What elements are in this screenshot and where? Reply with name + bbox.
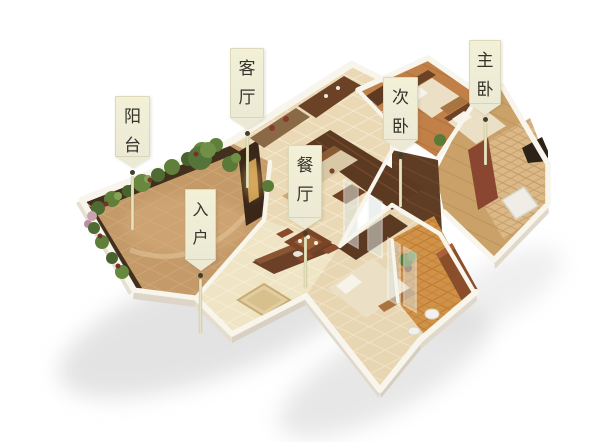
room-label-living-room: 客厅 [230, 48, 264, 129]
room-label-entrance: 入户 [185, 189, 216, 271]
room-label-point [186, 260, 216, 271]
room-label-body: 餐厅 [288, 145, 322, 218]
room-label-text: 客厅 [237, 48, 257, 113]
room-label-point [230, 118, 264, 129]
room-label-balcony: 阳台 [115, 96, 150, 168]
room-label-body: 客厅 [230, 48, 264, 118]
pin-dot [398, 153, 403, 158]
room-label-point [384, 140, 418, 151]
pin-stem [246, 137, 249, 188]
room-label-point [288, 218, 322, 229]
pin-stem [131, 176, 134, 230]
pin-dot [483, 117, 488, 122]
pin-dot [198, 273, 203, 278]
pin-dot [130, 170, 135, 175]
room-label-body: 次卧 [383, 77, 418, 140]
room-label-body: 入户 [185, 189, 216, 260]
room-label-point [469, 104, 501, 115]
pin-dot [303, 231, 308, 236]
room-label-text: 入户 [191, 189, 209, 251]
floorplan-screenshot: 阳台客厅入户餐厅次卧主卧 [0, 0, 600, 442]
pin-stem [199, 279, 202, 333]
room-label-second-bedroom: 次卧 [383, 77, 418, 151]
room-label-text: 次卧 [391, 77, 411, 142]
room-label-text: 餐厅 [295, 145, 315, 210]
room-label-text: 主卧 [475, 40, 495, 105]
room-label-body: 阳台 [115, 96, 150, 157]
room-label-text: 阳台 [123, 96, 143, 161]
room-label-point [116, 157, 150, 168]
room-label-master-bedroom: 主卧 [469, 40, 501, 115]
room-label-body: 主卧 [469, 40, 501, 104]
room-label-dining-room: 餐厅 [288, 145, 322, 229]
pin-stem [484, 123, 487, 165]
pin-stem [304, 237, 307, 288]
pin-stem [399, 159, 402, 207]
pin-dot [245, 131, 250, 136]
